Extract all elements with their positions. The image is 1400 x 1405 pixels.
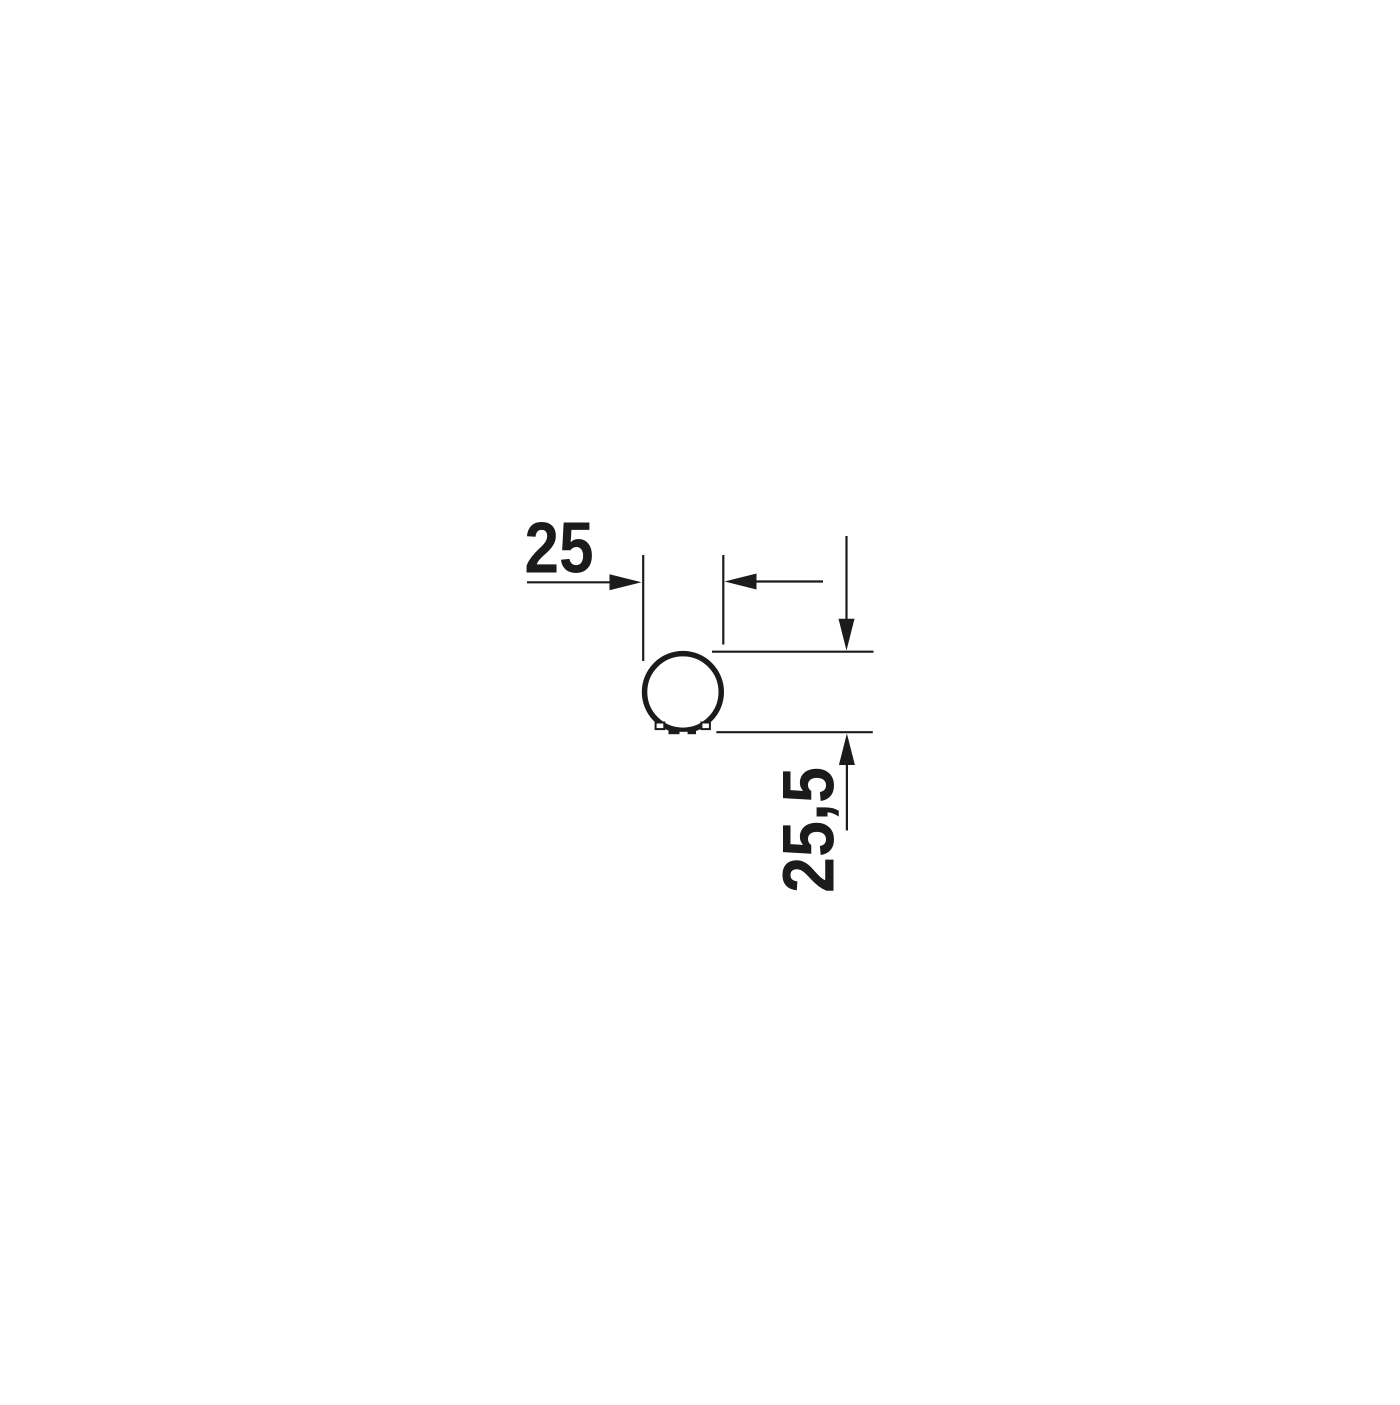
svg-text:25,5: 25,5 [762,767,850,893]
svg-text:25: 25 [524,508,593,589]
